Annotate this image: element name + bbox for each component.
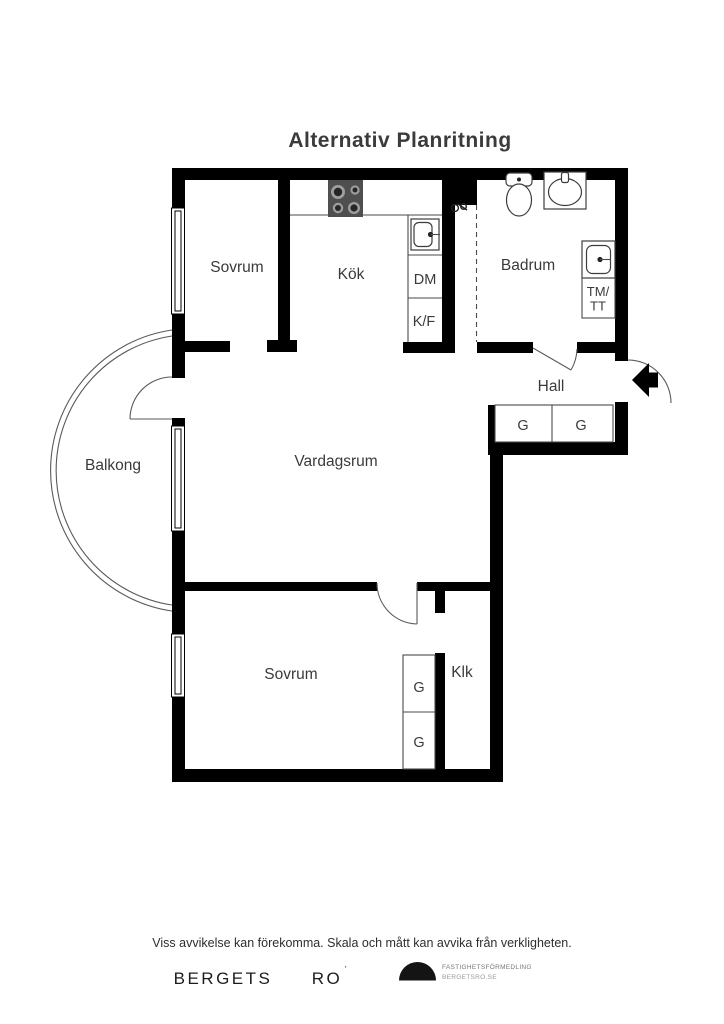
room-label-klk: Klk — [451, 664, 473, 681]
room-label-sovrum-bottom: Sovrum — [264, 666, 317, 683]
window-pane — [175, 211, 181, 311]
disclaimer-text: Viss avvikelse kan förekomma. Skala och … — [152, 936, 571, 950]
floorplan-page: Alternativ Planritning — [0, 0, 724, 1024]
toilet-icon — [506, 173, 532, 216]
room-label-hall: Hall — [538, 378, 565, 395]
wall-segment — [435, 591, 445, 613]
wall-segment — [403, 342, 455, 353]
room-label-balkong: Balkong — [85, 457, 141, 474]
room-label-vardagsrum: Vardagsrum — [294, 453, 377, 470]
wall-segment — [172, 168, 185, 208]
wall-segment — [488, 405, 495, 442]
wall-segment — [577, 342, 615, 353]
wall-segment — [185, 582, 377, 591]
wall-segment — [278, 180, 290, 352]
half-dome-logo — [399, 962, 436, 981]
label-wardrobe-g: G — [413, 680, 424, 696]
label-tm-line1: TM/ — [587, 284, 610, 299]
page-title: Alternativ Planritning — [288, 129, 511, 152]
sink-icon — [411, 219, 440, 250]
wall-segment — [615, 402, 628, 455]
floorplan-drawing: Alternativ Planritning — [0, 0, 724, 1024]
label-dm: DM — [414, 272, 437, 288]
label-tm-line2: TT — [590, 299, 606, 314]
washer-icon — [582, 241, 615, 278]
footer: Viss avvikelse kan förekomma. Skala och … — [152, 936, 571, 988]
brand-mark: ' — [345, 965, 347, 974]
wall-segment — [477, 342, 533, 353]
bedroom-door-arc — [377, 583, 417, 624]
bathroom-door-leaf — [533, 348, 571, 370]
label-wardrobe-g: G — [413, 735, 424, 751]
wall-segment — [172, 531, 185, 634]
wall-segment — [435, 653, 445, 769]
label-kf: K/F — [413, 314, 436, 330]
label-wardrobe-g: G — [517, 418, 528, 434]
wall-segment — [267, 340, 297, 352]
washbasin-icon — [544, 172, 586, 209]
brand-bergets: BERGETS — [174, 969, 273, 988]
room-label-sovrum-top: Sovrum — [210, 259, 263, 276]
label-wardrobe-g: G — [575, 418, 586, 434]
logo-line2: BERGETSRO.SE — [442, 974, 497, 981]
balcony-door-arc — [130, 377, 172, 419]
wall-segment — [615, 168, 628, 361]
wall-segment — [417, 582, 490, 591]
wall-segment — [172, 314, 185, 378]
window-pane — [175, 429, 181, 528]
bathroom-door-arc — [571, 349, 577, 370]
wall-segment — [442, 168, 477, 205]
window-pane — [175, 637, 181, 694]
wall-segment — [488, 442, 628, 455]
brand-ro: RO — [312, 969, 343, 988]
wall-segment — [185, 341, 230, 352]
stove-icon — [328, 180, 363, 217]
logo-line1: FASTIGHETSFÖRMEDLING — [442, 963, 532, 971]
room-label-kok: Kök — [338, 266, 365, 283]
room-label-badrum: Badrum — [501, 257, 555, 274]
wall-segment — [172, 418, 185, 426]
wall-segment — [172, 769, 503, 782]
hall-wardrobe-row — [495, 405, 613, 442]
wall-segment — [490, 442, 503, 782]
